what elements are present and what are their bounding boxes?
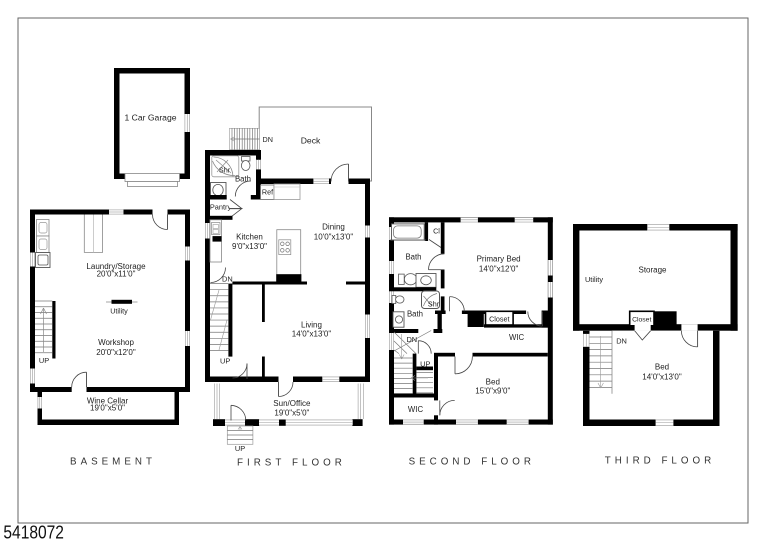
svg-text:10'0"x13'0": 10'0"x13'0" [314,233,354,242]
svg-text:Bath: Bath [235,175,251,184]
svg-text:Bed: Bed [486,378,500,387]
svg-text:Deck: Deck [301,136,321,146]
svg-text:UP: UP [235,444,245,453]
svg-text:UP: UP [39,356,49,365]
svg-text:14'0"x13'0": 14'0"x13'0" [642,373,682,382]
svg-text:Workshop: Workshop [98,338,134,347]
svg-text:20'0"x12'0": 20'0"x12'0" [96,348,136,357]
svg-text:Utility: Utility [585,275,603,284]
svg-text:5418072: 5418072 [3,522,64,542]
svg-text:Bath: Bath [405,253,421,262]
svg-text:WIC: WIC [509,333,525,342]
svg-text:UP: UP [420,359,430,368]
svg-text:Sun/Office: Sun/Office [273,399,311,408]
svg-text:BASEMENT: BASEMENT [70,457,156,468]
svg-text:Dining: Dining [322,223,345,232]
svg-text:Closet: Closet [632,317,651,324]
svg-text:1 Car Garage: 1 Car Garage [124,113,176,123]
svg-text:Shr: Shr [428,300,440,309]
svg-text:SECOND FLOOR: SECOND FLOOR [409,457,535,468]
svg-text:15'0"x9'0": 15'0"x9'0" [475,387,510,396]
svg-text:DN: DN [222,275,233,284]
svg-text:Primary Bed: Primary Bed [477,255,521,264]
svg-text:Ref: Ref [262,188,273,197]
svg-text:DN: DN [263,135,273,144]
svg-text:14'0"x12'0": 14'0"x12'0" [479,265,519,274]
svg-text:FIRST FLOOR: FIRST FLOOR [237,458,346,469]
svg-text:Cl: Cl [433,227,440,236]
svg-text:Closet: Closet [489,314,509,323]
svg-text:Pantry: Pantry [210,203,232,212]
svg-text:Living: Living [301,321,322,330]
svg-text:19'0"x5'0": 19'0"x5'0" [90,404,125,413]
svg-text:DN: DN [616,337,627,346]
svg-text:Shr: Shr [219,166,231,175]
svg-text:Storage: Storage [638,266,667,275]
svg-text:Kitchen: Kitchen [236,233,263,242]
svg-text:WIC: WIC [408,405,424,414]
svg-text:9'0"x13'0": 9'0"x13'0" [232,242,267,251]
svg-text:20'0"x11'0": 20'0"x11'0" [97,270,136,279]
svg-text:UP: UP [220,357,230,366]
svg-text:THIRD FLOOR: THIRD FLOOR [605,456,715,467]
svg-text:DN: DN [406,335,417,344]
svg-text:Utility: Utility [110,307,128,316]
svg-text:19'0"x5'0": 19'0"x5'0" [274,409,309,418]
svg-text:Bed: Bed [655,363,669,372]
svg-text:14'0"x13'0": 14'0"x13'0" [292,330,332,339]
svg-text:Bath: Bath [407,310,423,319]
